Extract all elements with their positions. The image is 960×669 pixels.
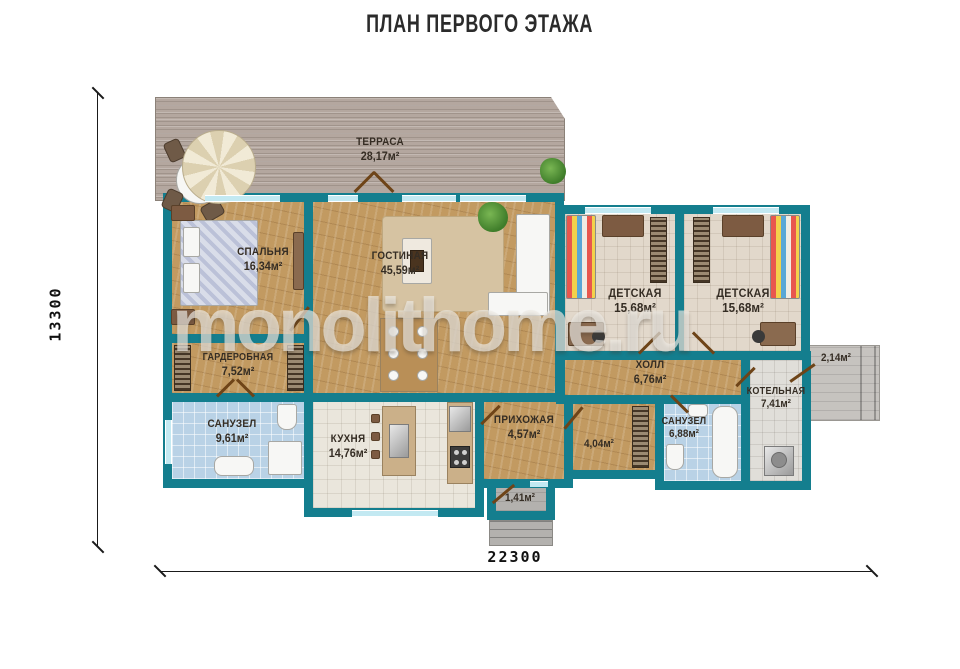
dimension-tick	[92, 87, 105, 100]
room-label: КОТЕЛЬНАЯ7,41м²	[731, 386, 821, 411]
sofa-icon	[488, 292, 548, 316]
window	[328, 195, 358, 202]
dimension-tick	[92, 541, 105, 554]
pillow-icon	[183, 227, 200, 257]
window	[460, 195, 526, 202]
room-label: ХОЛЛ6,76м²	[612, 359, 688, 387]
plate-icon	[417, 370, 428, 381]
nightstand-icon	[171, 205, 195, 221]
office-chair-icon	[592, 330, 605, 343]
window	[530, 481, 548, 487]
window	[713, 207, 779, 214]
hanger-rack-icon	[632, 406, 649, 468]
dimension-label-height: 13300	[47, 286, 65, 341]
window	[205, 195, 280, 202]
room-label: 2,14м²	[809, 352, 863, 365]
window	[352, 510, 438, 517]
window	[165, 420, 172, 464]
chair-icon	[371, 414, 380, 423]
dimension-label-width: 22300	[460, 548, 570, 566]
dresser-icon	[722, 215, 764, 237]
room-label: ТЕРРАСА28,17м²	[326, 136, 434, 164]
plate-icon	[417, 348, 428, 359]
room-label: 1,41м²	[493, 492, 547, 505]
plate-icon	[388, 370, 399, 381]
hanger-rack-icon	[174, 345, 191, 391]
office-chair-icon	[752, 330, 765, 343]
toilet-icon	[666, 444, 684, 470]
sink-icon	[389, 424, 409, 458]
toilet-icon	[277, 404, 297, 430]
page-title: ПЛАН ПЕРВОГО ЭТАЖА	[0, 10, 960, 39]
dimension-line-vertical	[97, 93, 98, 547]
room-label: ДЕТСКАЯ15,68м²	[590, 286, 680, 316]
nightstand-icon	[171, 309, 195, 325]
room-label: КУХНЯ14,76м²	[312, 433, 384, 461]
pillow-icon	[183, 263, 200, 293]
room-label: ГАРДЕРОБНАЯ7,52м²	[198, 352, 279, 378]
room-label: 4,04м²	[571, 438, 627, 451]
entry-steps	[489, 520, 553, 546]
dimension-line-horizontal	[160, 571, 872, 572]
desk-icon	[760, 322, 796, 346]
boiler-icon	[771, 452, 787, 468]
window	[402, 195, 456, 202]
plate-icon	[388, 326, 399, 337]
umbrella-icon	[182, 130, 256, 204]
hanger-rack-icon	[287, 345, 304, 391]
floor-plan-canvas: ПЛАН ПЕРВОГО ЭТАЖА 13300 22300 ТЕРРАСА28…	[0, 0, 960, 669]
plant-icon	[478, 202, 508, 232]
room-label: ГОСТИНАЯ45,59м²	[355, 250, 445, 278]
plant-icon	[540, 158, 566, 184]
sink-icon	[449, 406, 471, 432]
stove-icon	[450, 446, 470, 468]
room-label: ПРИХОЖАЯ4,57м²	[484, 414, 565, 442]
plate-icon	[388, 348, 399, 359]
sink-icon	[214, 456, 254, 476]
window	[585, 207, 651, 214]
room-label: СПАЛЬНЯ16,34м²	[223, 246, 304, 274]
plate-icon	[417, 326, 428, 337]
room-label: САНУЗЕЛ6,88м²	[652, 416, 717, 441]
hanger-rack-icon	[693, 217, 710, 283]
hanger-rack-icon	[650, 217, 667, 283]
room-label: ДЕТСКАЯ15,68м²	[698, 286, 788, 316]
room-label: САНУЗЕЛ9,61м²	[196, 418, 268, 446]
dresser-icon	[602, 215, 644, 237]
shower-icon	[268, 441, 302, 475]
